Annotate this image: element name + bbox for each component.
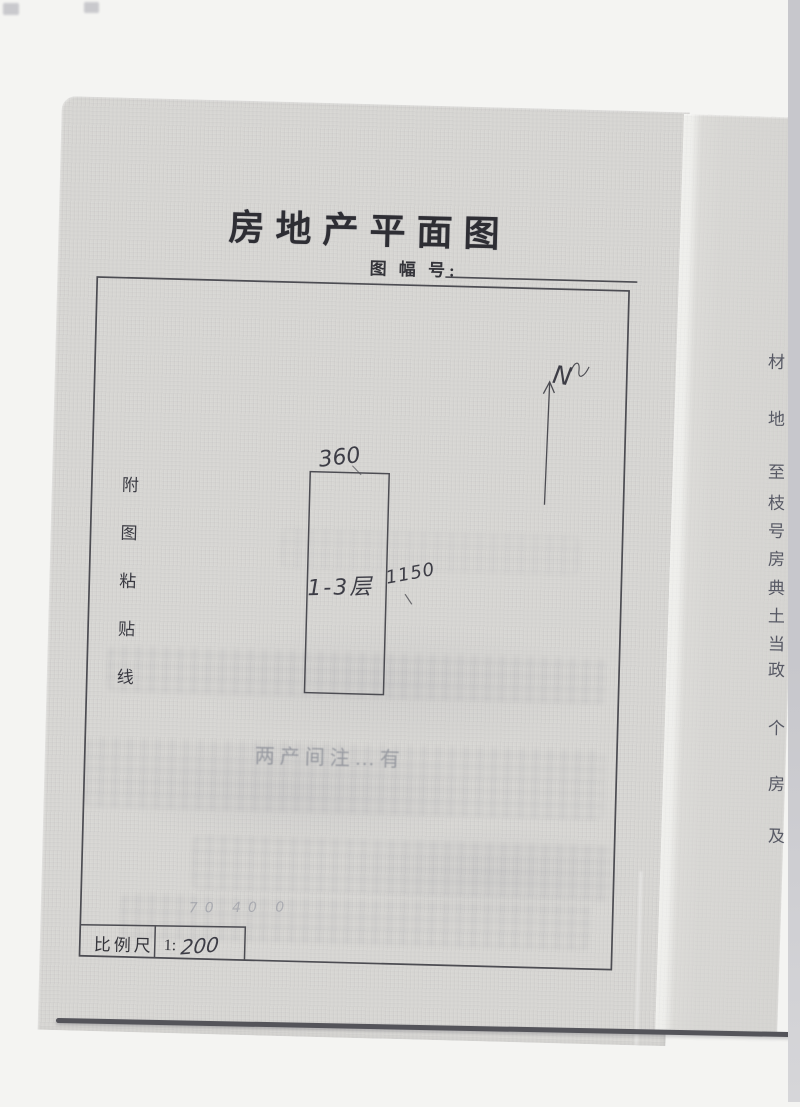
floor-range-label: 1-3层 xyxy=(307,569,374,603)
width-dimension-value: 360 xyxy=(317,443,362,473)
pencil-scribble-note: 70 40 0 xyxy=(189,899,292,916)
scan-smudge xyxy=(84,2,99,13)
scan-smudge xyxy=(3,3,19,15)
scale-ratio: 1:200 xyxy=(163,933,219,958)
scale-ratio-prefix: 1: xyxy=(164,937,177,954)
scale-label: 比例尺 xyxy=(94,930,155,957)
sheet-number-underline xyxy=(445,277,637,282)
map-sheet-number-label: 图 幅 号: xyxy=(369,254,459,281)
outer-border-box xyxy=(80,277,630,970)
page-title: 房地产平面图 xyxy=(228,198,511,257)
dimension-tick xyxy=(405,594,412,604)
scale-ratio-value-handwritten: 200 xyxy=(180,932,220,959)
left-page-paper: 房地产平面图 图 幅 号: 附图粘贴线 360 1-3层 1150 N 两产间注… xyxy=(38,96,690,1046)
faint-stamp-note: 两产间注…有 xyxy=(254,739,405,772)
scanned-document-canvas: 房地产平面图 图 幅 号: 附图粘贴线 360 1-3层 1150 N 两产间注… xyxy=(0,0,800,1107)
right-edge-strip xyxy=(788,0,800,1102)
